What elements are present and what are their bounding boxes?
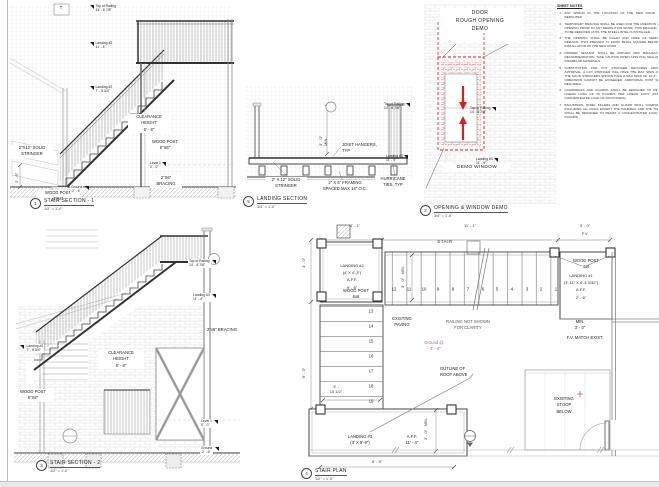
s2-top-of-railing-marker: Top of Railing 14' - 8 7/8" (188, 259, 216, 268)
s1-title: STAIR SECTION - 1 (44, 198, 94, 206)
s1-ground-dim: 2' - 6" (14, 173, 19, 183)
tread-number: 14 (369, 324, 374, 329)
sheet-left-edge (7, 0, 8, 481)
s1-landing3-marker: Landing #3 11' - 4" (90, 41, 112, 50)
s1-title-block: 1 STAIR SECTION - 1 1/2" = 1'-0" (30, 198, 94, 211)
tread-number: 2 (540, 287, 542, 292)
elevation-flag-icon (406, 103, 410, 107)
tread-number: 3 (526, 287, 528, 292)
ls-title: LANDING SECTION (257, 196, 307, 204)
elevation-flag-icon (492, 107, 496, 111)
drawing-sheet: T Top of Railing 14' - 8 7/8" Landing #3… (0, 0, 659, 487)
demo-title-block: 2 OPENING & WINDOW DEMO 3/4" = 1'-0" (420, 205, 508, 218)
tread-number: 16 (369, 354, 374, 359)
tread-number: 10 (422, 287, 427, 292)
s1-scale: 1/2" = 1'-0" (44, 207, 94, 211)
ls-rail-height-dim: 3' - 0" MIN. (318, 136, 328, 146)
plan-dim-left1: 4' - 0" (301, 258, 306, 268)
plan-dim-left2: 6' - 3" (301, 368, 306, 378)
sheet-note: 3.THE OPENING SHALL BE CLEAN AND FREE OF… (557, 36, 658, 48)
s1-bracing-label: 2"X6" BRACING (150, 175, 182, 188)
tread-number: 5 (496, 287, 498, 292)
plan-landing2-label: LANDING #2 (4' X 4'-3") A.F.F. 9' - 5" (323, 262, 381, 291)
sheet-note: 4.PROPER SEALANT SHALL BE APPLIED PER MA… (557, 51, 658, 63)
s2-detail-number: 3 (36, 460, 47, 471)
plan-aff3-label: A.F.F. 11' - 4" (396, 434, 428, 447)
tread-number: 17 (369, 369, 374, 374)
s2-ground-label: Ground -2' - 6" (200, 446, 213, 455)
plan-title-block: 4 STAIR PLAN 1/2" = 1'-0" (301, 468, 347, 481)
s2-scale: 1/2" = 1'-0" (50, 469, 100, 473)
s2-post6x8-label: WOOD POST 6"X8" (12, 389, 54, 402)
plan-post4x4-label: WOOD POST 4x4 (564, 258, 608, 271)
s2-landing3-marker: Landing #3 11' - 4" (192, 293, 216, 302)
s2-ground-marker: Ground -2' - 6" (200, 446, 219, 455)
elevation-flag-icon (404, 155, 408, 159)
elevation-flag-icon (494, 158, 498, 162)
s1-top-of-railing-marker: Top of Railing 14' - 8 7/8" (90, 4, 116, 13)
plan-ground-note: Ground @ - 2' - 6" (418, 340, 450, 353)
tread-number: 13 (369, 309, 374, 314)
elevation-flag-icon (212, 260, 216, 264)
ls-detail-number: 5 (243, 196, 254, 207)
tread-number: 4 (511, 287, 513, 292)
demo-window-label: DEMO WINDOW (444, 164, 510, 171)
demo-title: OPENING & WINDOW DEMO (434, 205, 508, 213)
s2-title: STAIR SECTION - 2 (50, 460, 100, 468)
ls-landing3-label: Landing #3 11' - 4" (386, 154, 403, 163)
s2-top-of-railing-label: Top of Railing 14' - 8 7/8" (188, 259, 211, 268)
demo-heading: DOOR ROUGH OPENING DEMO (443, 10, 517, 33)
sheet-note: 2.TEMPORARY BRACING SHALL BE USED FOR TH… (557, 22, 658, 34)
tread-number: 15 (369, 339, 374, 344)
tread-number: 12 (392, 287, 397, 292)
s2-level1-label: Level 1 0' - 0" (200, 419, 213, 428)
plan-detail-number: 4 (301, 468, 312, 479)
s1-ground-marker: Ground -2' - 6" (70, 185, 89, 194)
plan-fv-match-label: F.V. MATCH EXIST. (558, 335, 612, 341)
s1-detail-number: 1 (30, 198, 41, 209)
sheet-note: 6.GUARDRAILS AND GUARDS SHALL BE DESIGNE… (557, 88, 658, 100)
ls-title-block: 5 LANDING SECTION 3/4" = 1'-0" (243, 196, 307, 209)
plan-stair-label: STAIR (425, 239, 465, 246)
tread-number: 7 (467, 287, 469, 292)
s1-landing3-label: Landing #3 11' - 4" (96, 41, 113, 50)
sheet-bottom-edge (0, 481, 659, 487)
s1-top-of-railing-label: Top of Railing 14' - 8 7/8" (96, 4, 117, 13)
s1-landing2-label: Landing #2 7' - 5 3/4" (96, 85, 113, 94)
s2-landing3-label: Landing #3 11' - 4" (192, 293, 211, 302)
plan-dim-top-left: 4' - 1" (340, 223, 370, 228)
elevation-flag-icon (90, 5, 94, 9)
ls-hurricane-label: HURRICANE TIES, TYP (375, 176, 411, 189)
plan-dim-top-right: 3' - 0" (570, 223, 600, 228)
ls-scale: 3/4" = 1'-0" (257, 205, 307, 209)
plan-dim-bottom: 8' - 9" (362, 459, 392, 464)
elevation-flag-icon (20, 345, 24, 349)
plan-paving-label: EXISTING PAVING (384, 316, 420, 329)
demo-top-of-railing-marker: Top of Railing 14' - 8 7/8" (470, 106, 496, 115)
elevation-flag-icon (85, 186, 89, 190)
plan-landing1-label: LANDING #1 (3'-11" X 6'-3 3/32") A.F.F. … (552, 272, 610, 301)
plan-stoop-label: EXISTING STOOP BELOW (546, 396, 582, 415)
plan-min2-label: MIN. 3' - 0" (566, 319, 594, 332)
demo-top-of-railing-label: Top of Railing 14' - 8 7/8" (470, 106, 491, 115)
plan-roof-outline-label: OUTLINE OF ROOF ABOVE (440, 366, 482, 379)
s2-landing2-label: Landing #2 7' - 5 3/4" (26, 344, 45, 353)
ls-framing-label: 2" X 6" FRAMING SPACED MAX 16" O.C. (317, 180, 373, 193)
tread-number: 8 (452, 287, 454, 292)
s1-level1-label: Level 1 0' - 0" (150, 161, 161, 170)
s1-level1-marker: Level 1 0' - 0" (150, 161, 166, 170)
elevation-flag-icon (214, 420, 218, 424)
sheet-notes: SHEET NOTES 1.ANY WIRING IN THE LOCATION… (557, 4, 658, 120)
tread-number: 1 (555, 287, 557, 292)
tread-number: 9 (437, 287, 439, 292)
sheet-note: 5.SUBSTITUTION FOR CUT STRINGER REQUIRES… (557, 66, 658, 86)
ls-joist-hangers-label: JOIST HANGERS, TYP (341, 142, 387, 155)
demo-detail-number: 2 (420, 205, 431, 216)
tread-number: 18 (369, 384, 374, 389)
s1-stringer-label: 2"X12" SOLID STRINGER (10, 145, 54, 158)
plan-title: STAIR PLAN (315, 468, 347, 476)
elevation-flag-icon (90, 86, 94, 90)
plan-flight-dim: 3' - 10 1/2" (322, 384, 350, 394)
s1-clearance-label: CLEARANCE HEIGHT 6' - 8" (128, 114, 170, 133)
plan-railing-note: RAILING NOT SHOWN FOR CLARITY (436, 319, 500, 332)
demo-scale: 3/4" = 1'-0" (434, 214, 508, 218)
plan-landing3-label: LANDING #3 (3' X 8'-9") (338, 434, 382, 447)
elevation-flag-icon (215, 447, 219, 451)
s2-title-block: 3 STAIR SECTION - 2 1/2" = 1'-0" (36, 460, 100, 473)
plan-dim-top-mid: 11' - 1" (455, 223, 485, 228)
tread-number: 6 (482, 287, 484, 292)
elevation-flag-icon (162, 162, 166, 166)
s2-clearance-label: CLEARANCE HEIGHT 6' - 8" (98, 350, 144, 369)
s2-level1-marker: Level 1 0' - 0" (200, 419, 218, 428)
s1-ground-label: Ground -2' - 6" (70, 185, 83, 194)
tread-number: 11 (407, 287, 411, 292)
sheet-note: 1.ANY WIRING IN THE LOCATION OF THE NEW … (557, 11, 658, 19)
s1-post6x6-label: WOOD POST 6"X6" (147, 139, 183, 152)
sheet-notes-heading: SHEET NOTES (557, 4, 658, 9)
ls-top-of-railing-marker: Top of Railing 14' - 8 7/8" (384, 102, 410, 111)
ls-landing3-marker: Landing #3 11' - 4" (386, 154, 408, 163)
tread-number: 19 (369, 399, 374, 404)
sheet-note: 7.BALUSTERS, PANEL FILLERS AND GUARD INF… (557, 103, 658, 119)
s2-bracing-label: 2"x6" BRACING (207, 327, 257, 333)
plan-post6x6-label: WOOD POST 6x6 (331, 288, 381, 301)
s2-landing2-marker: Landing #2 7' - 5 3/4" (20, 344, 44, 353)
stair-section-1-linework (8, 3, 240, 217)
elevation-flag-icon (212, 294, 216, 298)
s1-tag: T (56, 5, 66, 12)
plan-min-run-dim: 3' - 0" MIN. (400, 266, 405, 288)
plan-fv-label: F.V. (570, 231, 600, 236)
ls-stringer-label: 2" X 12" SOLID STRINGER (265, 177, 307, 190)
s1-landing2-marker: Landing #2 7' - 5 3/4" (90, 85, 112, 94)
elevation-flag-icon (90, 42, 94, 46)
ls-top-of-railing-label: Top of Railing 14' - 8 7/8" (384, 102, 405, 111)
